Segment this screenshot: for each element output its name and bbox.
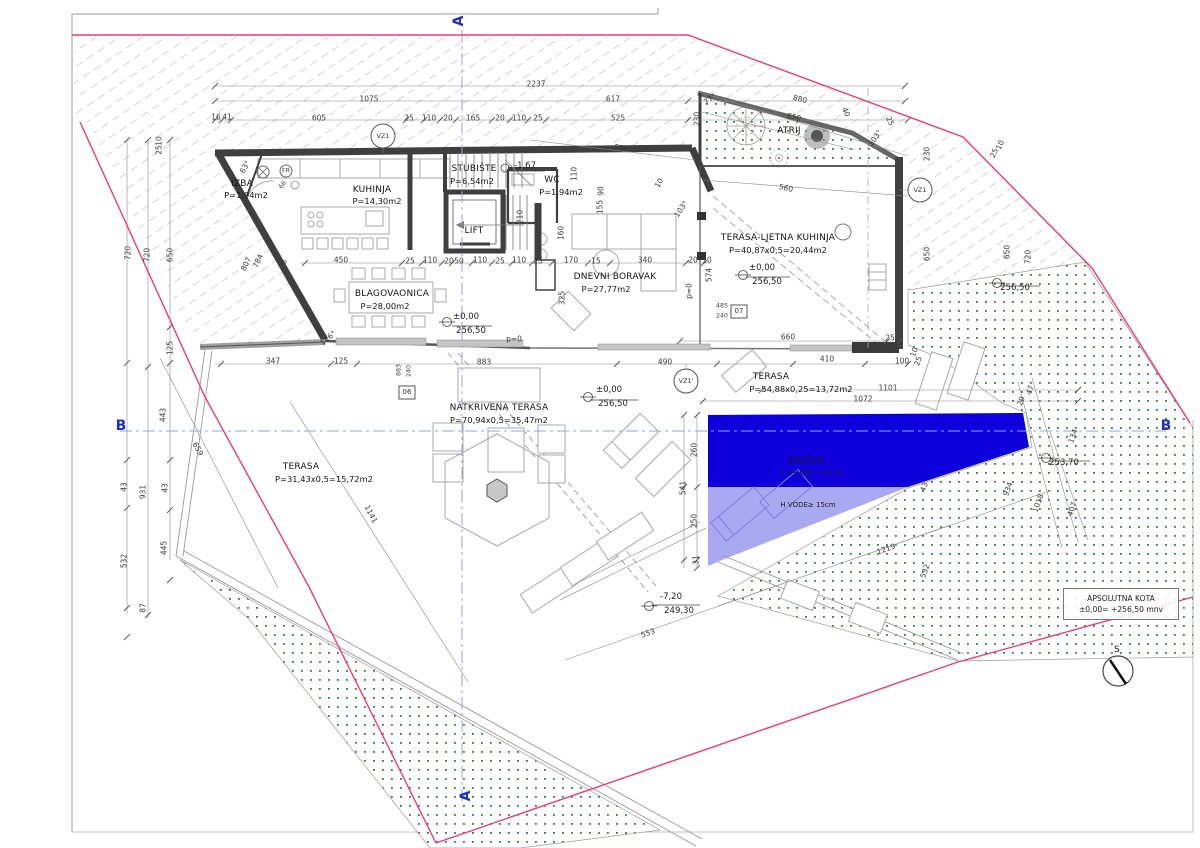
detail-box [399, 386, 415, 399]
vz1-circle [371, 124, 395, 148]
garden-southwest [180, 560, 660, 848]
kota-title: APSOLUTNA KOTA [1087, 593, 1155, 604]
detail-box [731, 305, 747, 318]
vz1-circle [908, 178, 932, 202]
north-arrow [1103, 656, 1133, 686]
kota-value: ±0,00= +256,50 mnv [1079, 604, 1163, 615]
floor-plan-page: AABBIZBAP=1,94m2KUHINJAP=14,30m2STUBIŠTE… [0, 0, 1200, 848]
absolute-elevation-box: APSOLUTNA KOTA ±0,00= +256,50 mnv [1063, 588, 1179, 620]
floor-plan-drawing [0, 0, 1200, 848]
vz1-prime-circle [674, 369, 698, 393]
